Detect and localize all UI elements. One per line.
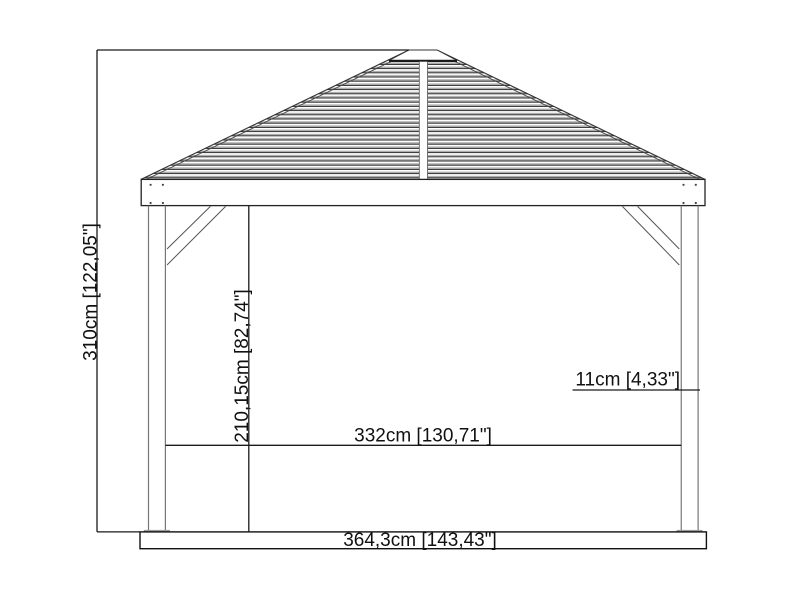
svg-text:332cm [130,71"]: 332cm [130,71"] — [354, 426, 492, 447]
svg-text:310cm [122,05"]: 310cm [122,05"] — [81, 223, 102, 361]
svg-text:210,15cm [82,74"]: 210,15cm [82,74"] — [232, 289, 253, 443]
svg-text:11cm [4,33"]: 11cm [4,33"] — [575, 369, 680, 390]
svg-text:364,3cm [143,43"]: 364,3cm [143,43"] — [343, 530, 497, 551]
